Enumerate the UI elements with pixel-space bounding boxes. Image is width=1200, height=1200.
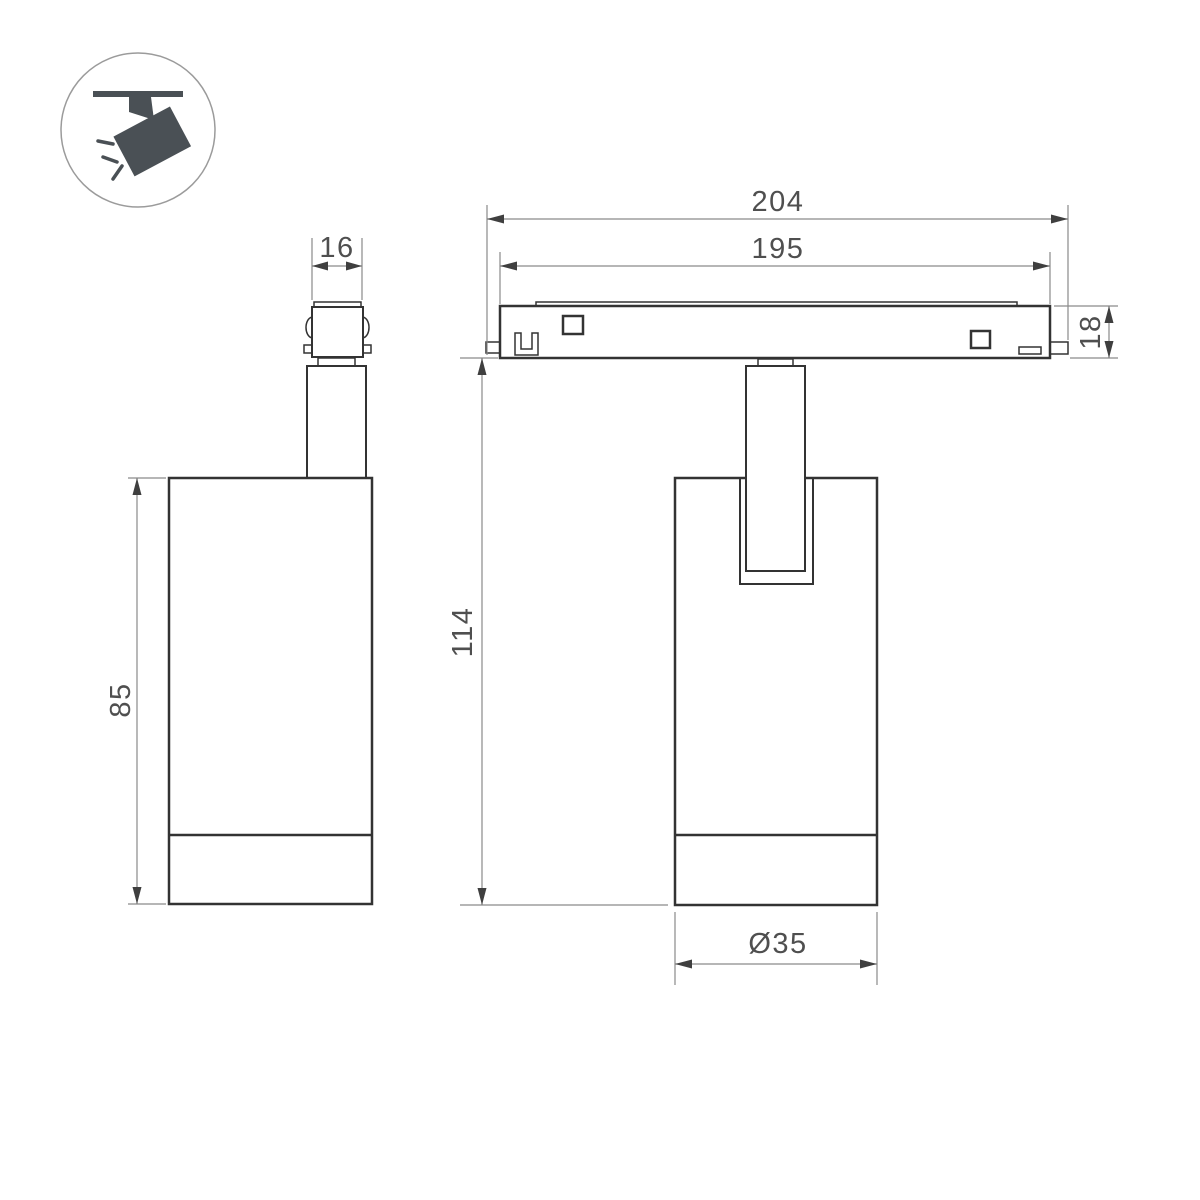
arrowhead-right bbox=[860, 960, 877, 969]
dim-label-body-diameter: Ø35 bbox=[748, 928, 807, 960]
rail-right-tab bbox=[1050, 342, 1068, 354]
dim-body-diameter: Ø35 bbox=[675, 912, 877, 985]
dim-rail-body-width: 195 bbox=[500, 233, 1050, 304]
arrowhead-left bbox=[500, 262, 517, 271]
dim-label-body-height: 85 bbox=[105, 682, 137, 717]
arrowhead-top bbox=[478, 358, 487, 375]
rail-right-clip bbox=[971, 331, 990, 348]
rail-left-tab bbox=[486, 342, 500, 353]
arrowhead-right bbox=[1033, 262, 1050, 271]
dim-rail-height: 18 bbox=[1054, 306, 1118, 358]
dim-lines bbox=[460, 358, 668, 905]
dim-overall-height: 114 bbox=[447, 358, 668, 905]
icon-ceiling-bar bbox=[93, 91, 183, 97]
dim-label-adapter-width: 16 bbox=[319, 232, 354, 264]
arrowhead-left bbox=[487, 215, 504, 224]
dim-label-overall-height: 114 bbox=[447, 607, 479, 658]
arrowhead-bottom bbox=[133, 887, 142, 904]
rail-u-channel bbox=[515, 333, 538, 355]
rail-right-slot bbox=[1019, 347, 1041, 354]
side-view bbox=[169, 302, 372, 904]
dim-label-rail-height: 18 bbox=[1075, 314, 1107, 349]
arrowhead-left bbox=[675, 960, 692, 969]
front-stem bbox=[746, 366, 805, 571]
rail-left-clip bbox=[563, 316, 583, 334]
front-neck bbox=[758, 359, 793, 366]
side-lamp-body bbox=[169, 478, 372, 904]
drawing-canvas: 16 204 195 18 114 85 Ø35 bbox=[0, 0, 1200, 1200]
adapter-left-hook bbox=[304, 345, 312, 353]
adapter-right-hook bbox=[363, 345, 371, 353]
dim-rail-overall-width: 204 bbox=[487, 186, 1068, 355]
ceiling-track-spotlight-icon bbox=[61, 53, 215, 207]
dim-label-rail-overall-width: 204 bbox=[752, 186, 805, 218]
arrowhead-right bbox=[1051, 215, 1068, 224]
arrowhead-bottom bbox=[478, 888, 487, 905]
dim-label-rail-body-width: 195 bbox=[752, 233, 805, 265]
front-view bbox=[486, 302, 1068, 905]
arrowhead-top bbox=[133, 478, 142, 495]
dim-lines bbox=[487, 205, 1068, 355]
technical-drawing-page: 16 204 195 18 114 85 Ø35 bbox=[0, 0, 1200, 1200]
dim-body-height: 85 bbox=[105, 478, 166, 904]
side-neck bbox=[318, 358, 355, 366]
side-stem bbox=[307, 366, 366, 478]
dim-adapter-width: 16 bbox=[312, 232, 362, 300]
adapter-head bbox=[312, 307, 363, 357]
